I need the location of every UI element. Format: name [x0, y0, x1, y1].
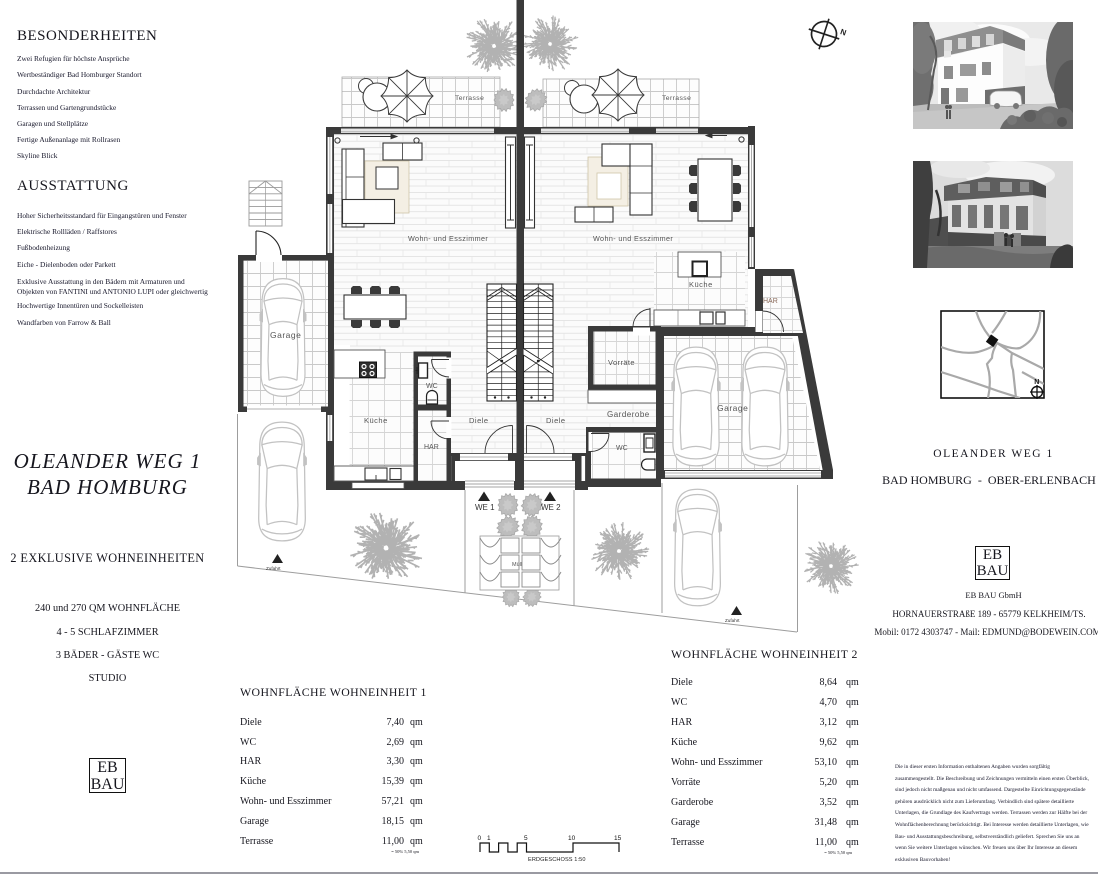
svg-text:HAR: HAR: [763, 298, 778, 305]
svg-text:Garage: Garage: [270, 330, 301, 340]
svg-text:WE 1: WE 1: [475, 503, 495, 512]
svg-text:Müll: Müll: [512, 562, 522, 568]
svg-text:Wohn- und Esszimmer: Wohn- und Esszimmer: [408, 234, 488, 243]
svg-text:N: N: [839, 27, 847, 37]
svg-text:0: 0: [478, 835, 482, 842]
svg-text:Diele: Diele: [469, 416, 489, 425]
svg-text:15: 15: [614, 835, 622, 842]
svg-text:Küche: Küche: [689, 280, 713, 289]
svg-text:10: 10: [568, 835, 576, 842]
svg-text:WC: WC: [426, 383, 438, 390]
svg-text:HAR: HAR: [424, 444, 439, 451]
svg-text:WE 2: WE 2: [541, 503, 561, 512]
svg-text:Terrasse: Terrasse: [455, 95, 484, 102]
svg-text:Garage: Garage: [717, 403, 748, 413]
svg-text:Wohn- und Esszimmer: Wohn- und Esszimmer: [593, 234, 673, 243]
svg-text:Garderobe: Garderobe: [607, 410, 650, 419]
svg-text:Zufahrt: Zufahrt: [725, 618, 740, 623]
svg-text:Terrasse: Terrasse: [662, 95, 691, 102]
svg-text:Diele: Diele: [546, 416, 566, 425]
svg-text:1: 1: [487, 835, 491, 842]
svg-text:Vorräte: Vorräte: [608, 358, 635, 367]
svg-text:Zufahrt: Zufahrt: [266, 566, 281, 571]
svg-text:N: N: [1034, 379, 1039, 386]
svg-text:WC: WC: [616, 445, 628, 452]
svg-text:5: 5: [524, 835, 528, 842]
svg-text:ERDGESCHOSS 1:50: ERDGESCHOSS 1:50: [528, 857, 586, 863]
svg-text:Küche: Küche: [364, 416, 388, 425]
